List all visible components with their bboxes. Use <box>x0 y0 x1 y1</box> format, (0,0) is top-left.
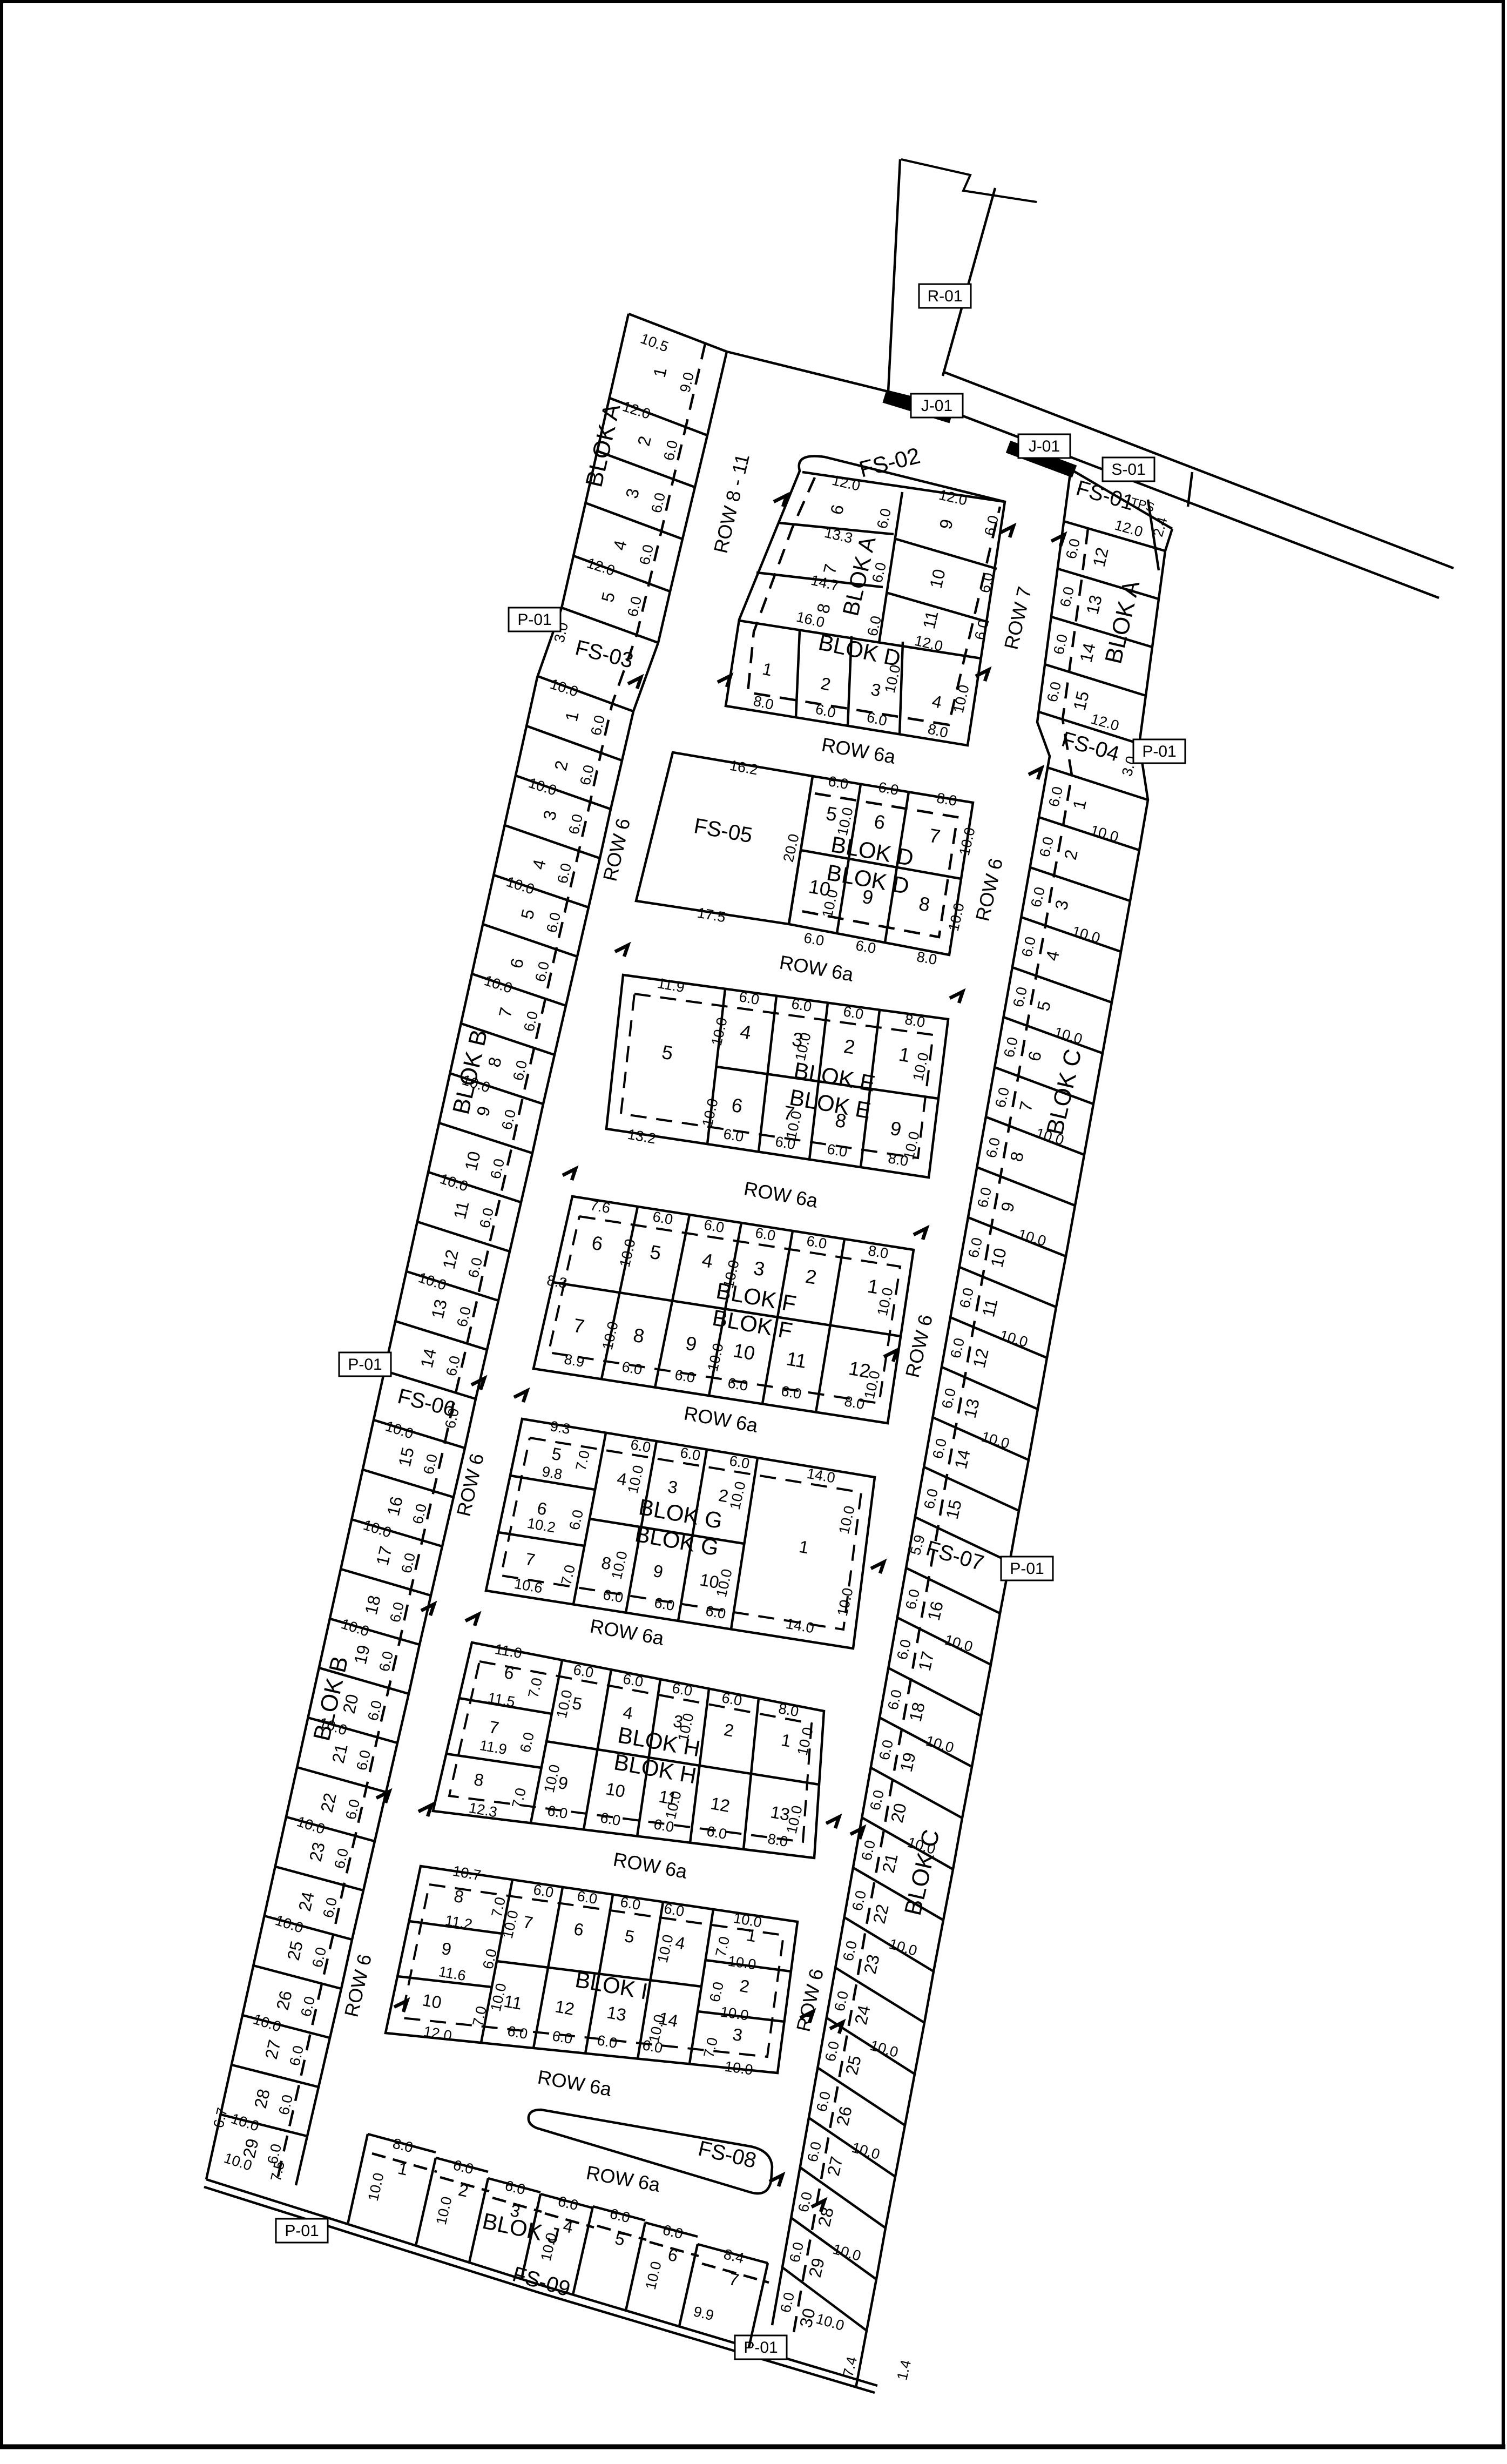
svg-text:8.0: 8.0 <box>887 1150 909 1169</box>
svg-text:6.0: 6.0 <box>722 1126 745 1145</box>
svg-text:6.0: 6.0 <box>842 1003 864 1022</box>
svg-text:6.0: 6.0 <box>506 2023 529 2042</box>
svg-text:6.0: 6.0 <box>602 1586 624 1606</box>
svg-text:6.0: 6.0 <box>726 1375 749 1394</box>
svg-text:6.0: 6.0 <box>805 1233 828 1252</box>
svg-text:6.0: 6.0 <box>754 1224 776 1244</box>
svg-text:6.0: 6.0 <box>653 1594 675 1614</box>
svg-text:6.0: 6.0 <box>827 773 849 792</box>
svg-text:6.0: 6.0 <box>679 1444 701 1464</box>
svg-text:8.3: 8.3 <box>545 1272 568 1291</box>
svg-text:6.0: 6.0 <box>619 1894 641 1913</box>
svg-text:P-01: P-01 <box>285 2222 319 2240</box>
svg-text:6.0: 6.0 <box>599 1809 621 1829</box>
svg-text:8.0: 8.0 <box>935 790 958 809</box>
svg-text:6.0: 6.0 <box>673 1366 696 1386</box>
svg-text:J-01: J-01 <box>921 397 952 415</box>
svg-text:P-01: P-01 <box>348 1356 382 1374</box>
svg-text:P-01: P-01 <box>744 2339 778 2357</box>
svg-text:6.0: 6.0 <box>576 1888 598 1907</box>
svg-text:6.0: 6.0 <box>620 1358 643 1378</box>
svg-text:6.0: 6.0 <box>738 988 760 1008</box>
svg-text:P-01: P-01 <box>1142 743 1176 760</box>
svg-text:8.0: 8.0 <box>777 1700 800 1720</box>
svg-text:J-01: J-01 <box>1029 437 1060 455</box>
svg-text:6.0: 6.0 <box>705 1823 728 1842</box>
svg-text:6.0: 6.0 <box>877 779 900 798</box>
svg-text:6.0: 6.0 <box>641 2037 664 2056</box>
svg-text:9.3: 9.3 <box>549 1418 571 1437</box>
svg-text:6.0: 6.0 <box>790 995 813 1015</box>
svg-text:8.0: 8.0 <box>903 1011 926 1031</box>
svg-text:10: 10 <box>421 1990 443 2012</box>
svg-text:8.9: 8.9 <box>563 1351 585 1370</box>
svg-text:13: 13 <box>605 2002 627 2025</box>
svg-text:6.0: 6.0 <box>802 930 825 949</box>
svg-text:6.0: 6.0 <box>629 1436 652 1456</box>
svg-text:S-01: S-01 <box>1111 461 1145 479</box>
svg-text:6.0: 6.0 <box>702 1216 725 1236</box>
svg-text:8.0: 8.0 <box>867 1242 889 1262</box>
svg-text:12: 12 <box>709 1793 731 1816</box>
svg-text:12: 12 <box>553 1996 576 2019</box>
svg-text:6.0: 6.0 <box>532 1881 555 1901</box>
svg-text:8.0: 8.0 <box>766 1830 789 1850</box>
svg-text:6.0: 6.0 <box>621 1671 644 1690</box>
svg-text:6.0: 6.0 <box>551 2028 573 2047</box>
svg-text:6.0: 6.0 <box>663 1900 685 1920</box>
svg-text:6.0: 6.0 <box>774 1133 796 1153</box>
svg-text:6.0: 6.0 <box>780 1383 802 1402</box>
svg-text:6.0: 6.0 <box>854 937 877 957</box>
svg-text:6.0: 6.0 <box>671 1680 693 1699</box>
svg-text:8.0: 8.0 <box>915 948 938 968</box>
svg-text:6.0: 6.0 <box>826 1141 848 1160</box>
svg-text:6.0: 6.0 <box>728 1452 751 1472</box>
svg-text:7.6: 7.6 <box>589 1197 611 1216</box>
svg-text:11: 11 <box>785 1347 808 1372</box>
svg-text:6.0: 6.0 <box>546 1802 569 1822</box>
svg-text:6.0: 6.0 <box>652 1816 675 1835</box>
svg-text:10: 10 <box>732 1339 757 1364</box>
svg-text:6.0: 6.0 <box>596 2032 618 2051</box>
svg-text:10: 10 <box>604 1779 626 1801</box>
svg-text:R-01: R-01 <box>927 287 962 305</box>
svg-text:6.0: 6.0 <box>704 1603 727 1622</box>
svg-text:9.8: 9.8 <box>540 1463 563 1483</box>
svg-text:P-01: P-01 <box>517 611 551 629</box>
svg-text:6.0: 6.0 <box>651 1208 674 1228</box>
svg-text:6.0: 6.0 <box>572 1661 594 1681</box>
svg-text:6.0: 6.0 <box>720 1689 743 1709</box>
svg-text:P-01: P-01 <box>1010 1560 1044 1578</box>
